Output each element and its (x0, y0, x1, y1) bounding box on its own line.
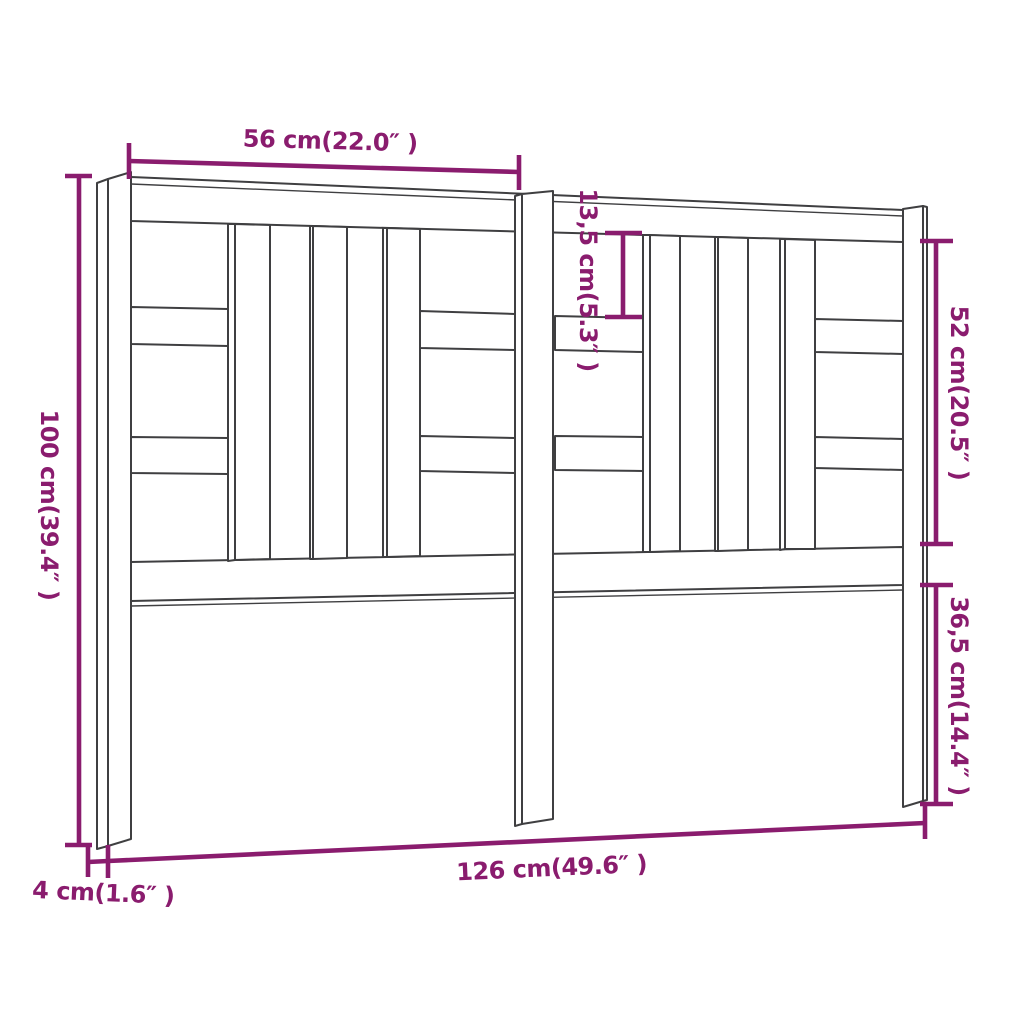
dimension-height: 100 cm(39.4″ ) (35, 176, 92, 845)
dimension-leg-thickness: 4 cm(1.6″ ) (32, 846, 175, 910)
center-leg-front-face (522, 191, 553, 824)
diagram-canvas: 56 cm(22.0″ ) 100 cm(39.4″ ) 13,5 cm(5.3… (0, 0, 1024, 1024)
dimension-label-slat-offset: 13,5 cm(5.3″ ) (574, 188, 602, 371)
cross-rail (420, 436, 515, 473)
headboard-drawing (97, 172, 927, 849)
slat-front (313, 226, 347, 559)
cross-rail (420, 311, 515, 350)
left-leg-front-face (108, 172, 131, 846)
slat-front (785, 239, 815, 549)
slat-front (387, 228, 420, 557)
dimension-label-leg-clearance: 36,5 cm(14.4″ ) (945, 596, 973, 796)
slat-side-face (228, 224, 235, 561)
cross-rail (815, 437, 903, 470)
dimension-line (129, 161, 519, 172)
dimension-label-panel-height: 52 cm(20.5″ ) (945, 306, 973, 481)
slat-side-face (643, 235, 650, 552)
right-leg-side-face (923, 206, 927, 801)
slat-front (650, 235, 680, 552)
cross-rail (555, 436, 643, 471)
dimension-annotations: 56 cm(22.0″ ) 100 cm(39.4″ ) 13,5 cm(5.3… (32, 125, 973, 911)
slat-front (235, 224, 270, 560)
dimension-label-total-width: 126 cm(49.6″ ) (456, 850, 648, 887)
cross-rail (815, 319, 903, 354)
slat-front (718, 237, 748, 551)
dimension-label-height: 100 cm(39.4″ ) (35, 410, 63, 601)
dimension-label-leg-thickness: 4 cm(1.6″ ) (32, 876, 175, 910)
left-leg-side-face (97, 179, 108, 849)
dimension-label-top-width: 56 cm(22.0″ ) (243, 125, 418, 158)
dimension-line (88, 861, 108, 862)
cross-rail (131, 307, 228, 346)
center-leg-side-face (515, 194, 522, 826)
right-leg-front-face (903, 206, 923, 807)
cross-rail (131, 437, 228, 474)
